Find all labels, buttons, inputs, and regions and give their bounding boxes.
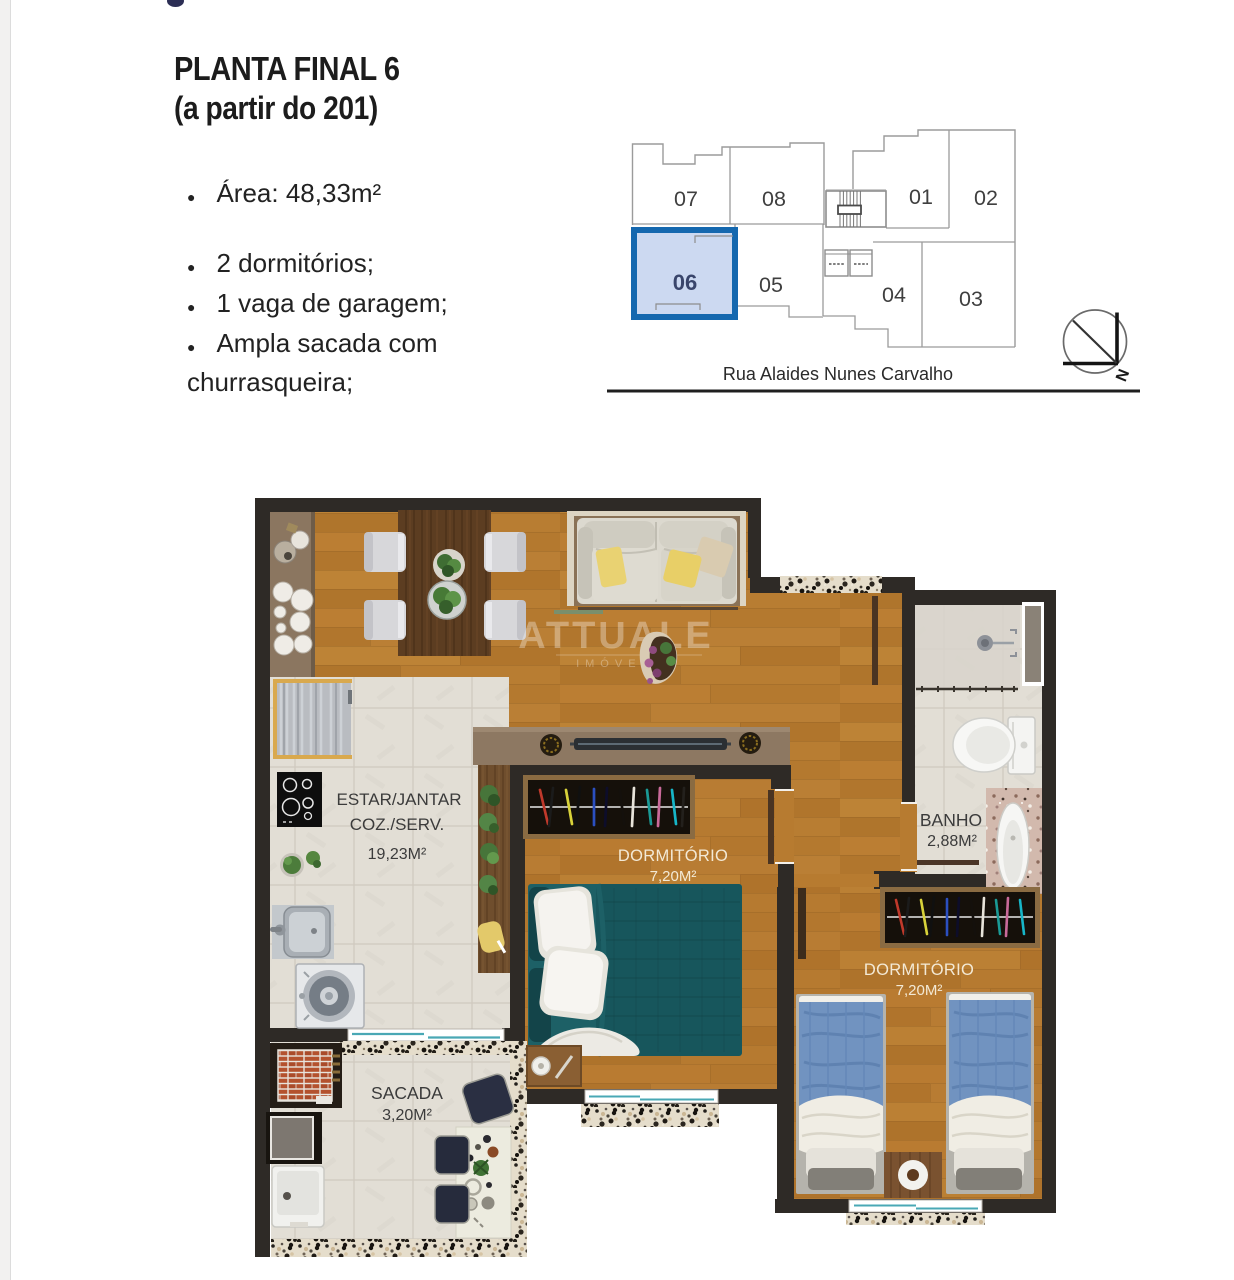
svg-text:DORMITÓRIO: DORMITÓRIO: [618, 846, 728, 865]
svg-text:ATTUALE: ATTUALE: [518, 615, 714, 657]
svg-text:BANHO: BANHO: [920, 810, 982, 830]
svg-text:07: 07: [674, 187, 698, 211]
svg-text:DORMITÓRIO: DORMITÓRIO: [864, 960, 974, 979]
svg-text:N: N: [1111, 366, 1131, 383]
svg-text:04: 04: [882, 283, 906, 307]
svg-text:SACADA: SACADA: [371, 1083, 443, 1103]
svg-text:Rua Alaides Nunes Carvalho: Rua Alaides Nunes Carvalho: [723, 364, 953, 384]
svg-text:01: 01: [909, 185, 933, 209]
svg-text:7,20M²: 7,20M²: [650, 868, 697, 885]
svg-text:ESTAR/JANTAR: ESTAR/JANTAR: [337, 790, 462, 809]
svg-text:06: 06: [673, 270, 697, 295]
svg-text:03: 03: [959, 287, 983, 311]
svg-text:19,23M²: 19,23M²: [368, 846, 427, 863]
svg-text:COZ./SERV.: COZ./SERV.: [350, 815, 444, 834]
svg-text:02: 02: [974, 186, 998, 210]
svg-text:05: 05: [759, 273, 783, 297]
svg-text:7,20M²: 7,20M²: [896, 982, 943, 999]
svg-text:08: 08: [762, 187, 786, 211]
svg-text:3,20M²: 3,20M²: [382, 1107, 432, 1124]
svg-text:2,88M²: 2,88M²: [927, 833, 977, 850]
